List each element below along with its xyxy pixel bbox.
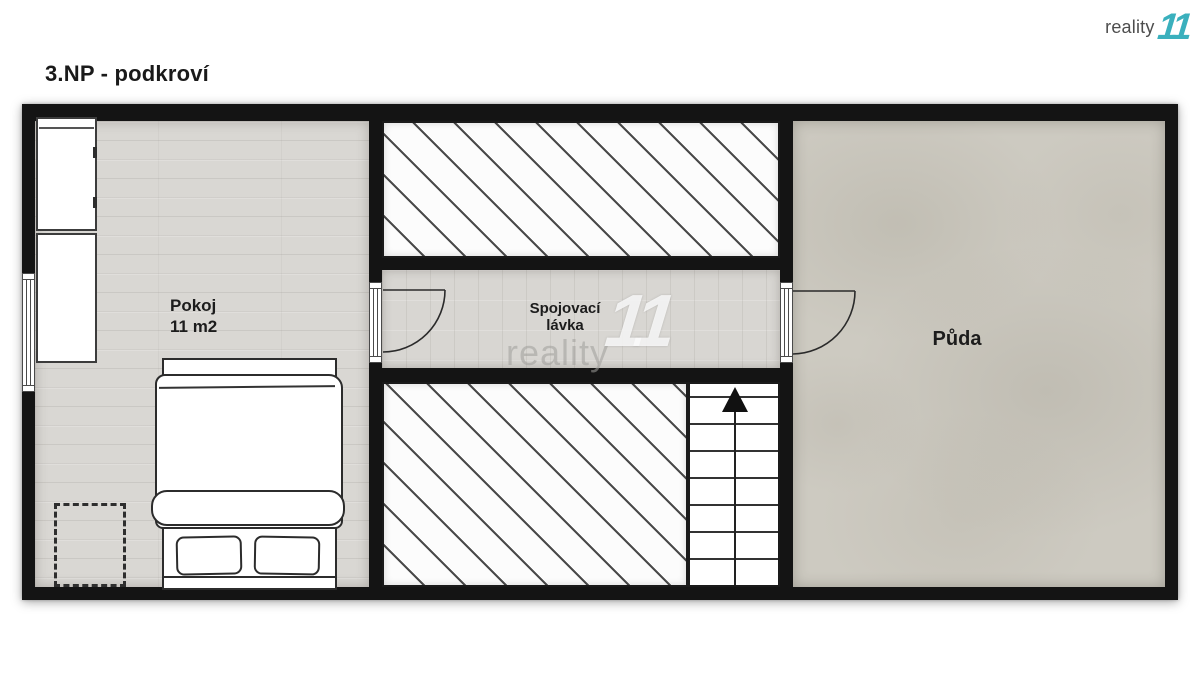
door-arc-icon-left [383,290,445,352]
room-label-pokoj: Pokoj 11 m2 [170,295,217,337]
room-area: 11 m2 [170,316,217,337]
watermark-brand-text: reality [506,332,609,374]
room-name: Pokoj [170,295,217,316]
door-arc-icon-right [793,291,855,354]
floor-plan-page: 3.NP - podkroví reality 11 [0,0,1200,675]
watermark-mark-11: 11 [602,284,673,358]
room-label-puda: Půda [902,328,1012,351]
room-name: Půda [902,328,1012,351]
